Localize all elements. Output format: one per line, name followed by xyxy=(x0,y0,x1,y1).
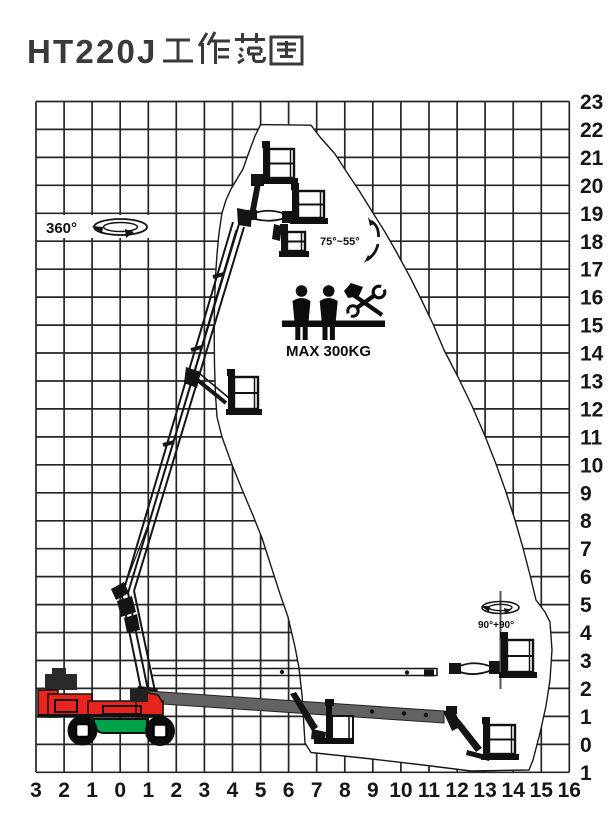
svg-text:2: 2 xyxy=(170,779,182,802)
svg-text:4: 4 xyxy=(227,779,239,802)
svg-text:1: 1 xyxy=(580,762,592,785)
svg-text:1: 1 xyxy=(580,706,592,729)
svg-text:10: 10 xyxy=(580,454,603,477)
svg-text:90°+90°: 90°+90° xyxy=(478,620,514,631)
svg-text:3: 3 xyxy=(30,779,42,802)
svg-text:1: 1 xyxy=(86,779,98,802)
svg-text:8: 8 xyxy=(580,510,592,533)
svg-text:1: 1 xyxy=(142,779,154,802)
svg-text:15: 15 xyxy=(580,315,604,338)
svg-text:14: 14 xyxy=(502,779,526,802)
svg-text:22: 22 xyxy=(580,119,603,142)
svg-text:13: 13 xyxy=(580,371,603,394)
svg-text:HT220J: HT220J xyxy=(27,33,158,70)
svg-text:10: 10 xyxy=(389,779,412,802)
svg-text:3: 3 xyxy=(580,650,592,673)
svg-text:12: 12 xyxy=(445,779,468,802)
svg-text:360°: 360° xyxy=(46,220,77,237)
svg-text:19: 19 xyxy=(580,203,603,226)
svg-text:16: 16 xyxy=(580,287,603,310)
svg-text:11: 11 xyxy=(418,779,441,802)
svg-text:0: 0 xyxy=(114,779,126,802)
svg-text:11: 11 xyxy=(580,426,603,449)
svg-text:20: 20 xyxy=(580,175,603,198)
svg-text:7: 7 xyxy=(580,538,592,561)
svg-text:21: 21 xyxy=(580,147,604,170)
svg-text:MAX 300KG: MAX 300KG xyxy=(286,343,371,360)
svg-text:13: 13 xyxy=(473,779,496,802)
svg-text:18: 18 xyxy=(580,231,604,254)
svg-text:6: 6 xyxy=(283,779,295,802)
svg-text:3: 3 xyxy=(199,779,211,802)
svg-text:5: 5 xyxy=(255,779,267,802)
svg-text:12: 12 xyxy=(580,398,603,421)
svg-text:7: 7 xyxy=(311,779,323,802)
svg-text:6: 6 xyxy=(580,566,592,589)
svg-text:5: 5 xyxy=(580,594,592,617)
svg-text:15: 15 xyxy=(530,779,554,802)
svg-text:14: 14 xyxy=(580,343,604,366)
svg-text:2: 2 xyxy=(58,779,70,802)
svg-text:4: 4 xyxy=(580,622,592,645)
svg-text:9: 9 xyxy=(580,482,592,505)
svg-text:16: 16 xyxy=(558,779,581,802)
svg-text:0: 0 xyxy=(580,734,592,757)
svg-text:9: 9 xyxy=(367,779,379,802)
svg-text:17: 17 xyxy=(580,259,603,282)
svg-text:2: 2 xyxy=(580,678,592,701)
svg-text:75°~55°: 75°~55° xyxy=(320,236,360,248)
svg-text:23: 23 xyxy=(580,91,603,114)
svg-text:8: 8 xyxy=(339,779,351,802)
